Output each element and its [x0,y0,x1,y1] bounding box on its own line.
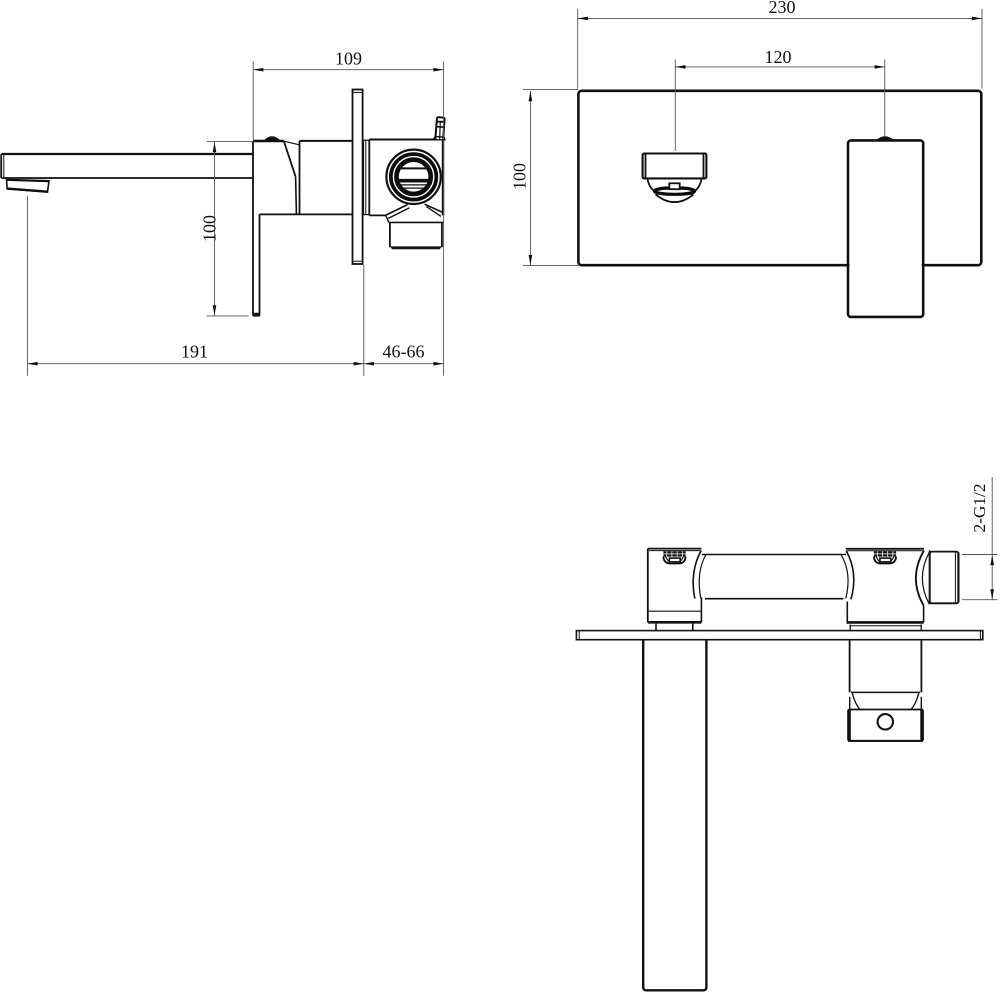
svg-text:230: 230 [769,0,796,17]
svg-text:100: 100 [200,215,220,242]
svg-text:100: 100 [510,163,530,190]
svg-text:120: 120 [765,47,792,67]
svg-text:109: 109 [335,49,362,69]
svg-text:46-66: 46-66 [383,342,425,362]
svg-text:191: 191 [181,342,208,362]
svg-text:2-G1/2: 2-G1/2 [970,484,989,533]
